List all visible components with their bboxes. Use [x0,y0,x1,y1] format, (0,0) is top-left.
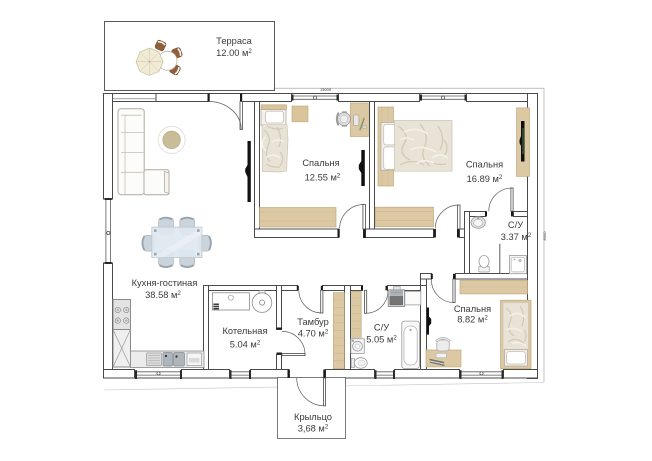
svg-text:С/У: С/У [508,220,523,230]
svg-text:С/У: С/У [374,323,389,333]
svg-text:3,68 м2: 3,68 м2 [298,424,329,434]
svg-text:Спальня: Спальня [454,304,491,314]
svg-text:8000: 8000 [542,231,547,241]
svg-text:13000: 13000 [320,87,332,92]
svg-text:8.82 м2: 8.82 м2 [457,315,488,325]
svg-text:Спальня: Спальня [466,160,503,170]
svg-text:16.89 м2: 16.89 м2 [467,174,503,184]
svg-text:5.04 м2: 5.04 м2 [230,340,261,350]
svg-text:Кухня-гостиная: Кухня-гостиная [132,278,198,288]
svg-text:38.58 м2: 38.58 м2 [145,290,181,300]
svg-text:Тамбур: Тамбур [297,317,329,327]
svg-text:Спальня: Спальня [302,158,339,168]
svg-text:Котельная: Котельная [222,326,267,336]
svg-text:12.00 м2: 12.00 м2 [216,48,252,58]
svg-text:12.55 м2: 12.55 м2 [305,173,341,183]
svg-text:5.05 м2: 5.05 м2 [366,335,397,345]
svg-text:3.37 м2: 3.37 м2 [501,232,532,242]
svg-text:Крыльцо: Крыльцо [294,412,332,422]
svg-text:4.70 м2: 4.70 м2 [298,329,329,339]
svg-text:Терраса: Терраса [216,36,252,46]
